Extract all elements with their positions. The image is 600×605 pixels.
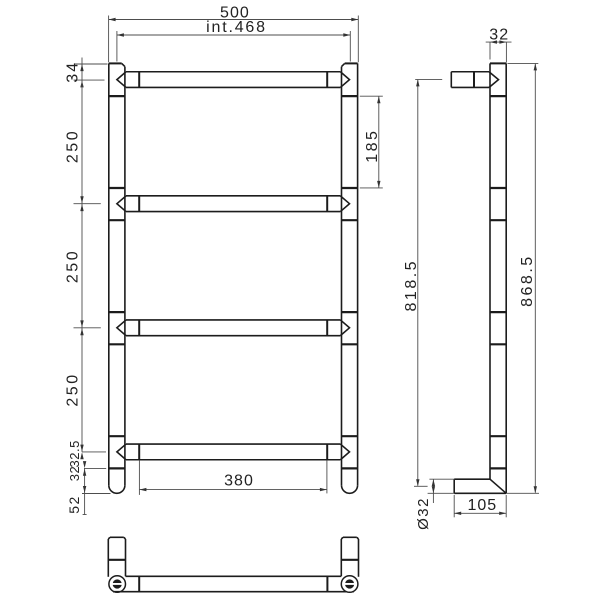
svg-text:32.5: 32.5: [67, 440, 82, 467]
svg-text:int.468: int.468: [206, 19, 267, 36]
svg-text:250: 250: [65, 129, 82, 163]
svg-text:105: 105: [467, 497, 497, 514]
svg-text:34: 34: [65, 61, 82, 83]
svg-text:868.5: 868.5: [519, 254, 536, 307]
svg-text:32: 32: [67, 466, 82, 481]
svg-text:185: 185: [364, 129, 381, 163]
svg-text:32: 32: [489, 26, 509, 43]
svg-text:250: 250: [65, 249, 82, 283]
svg-text:52: 52: [66, 495, 82, 514]
svg-text:Ø32: Ø32: [415, 497, 432, 530]
svg-text:250: 250: [65, 372, 82, 406]
svg-text:818.5: 818.5: [403, 259, 420, 312]
svg-text:380: 380: [224, 472, 254, 489]
